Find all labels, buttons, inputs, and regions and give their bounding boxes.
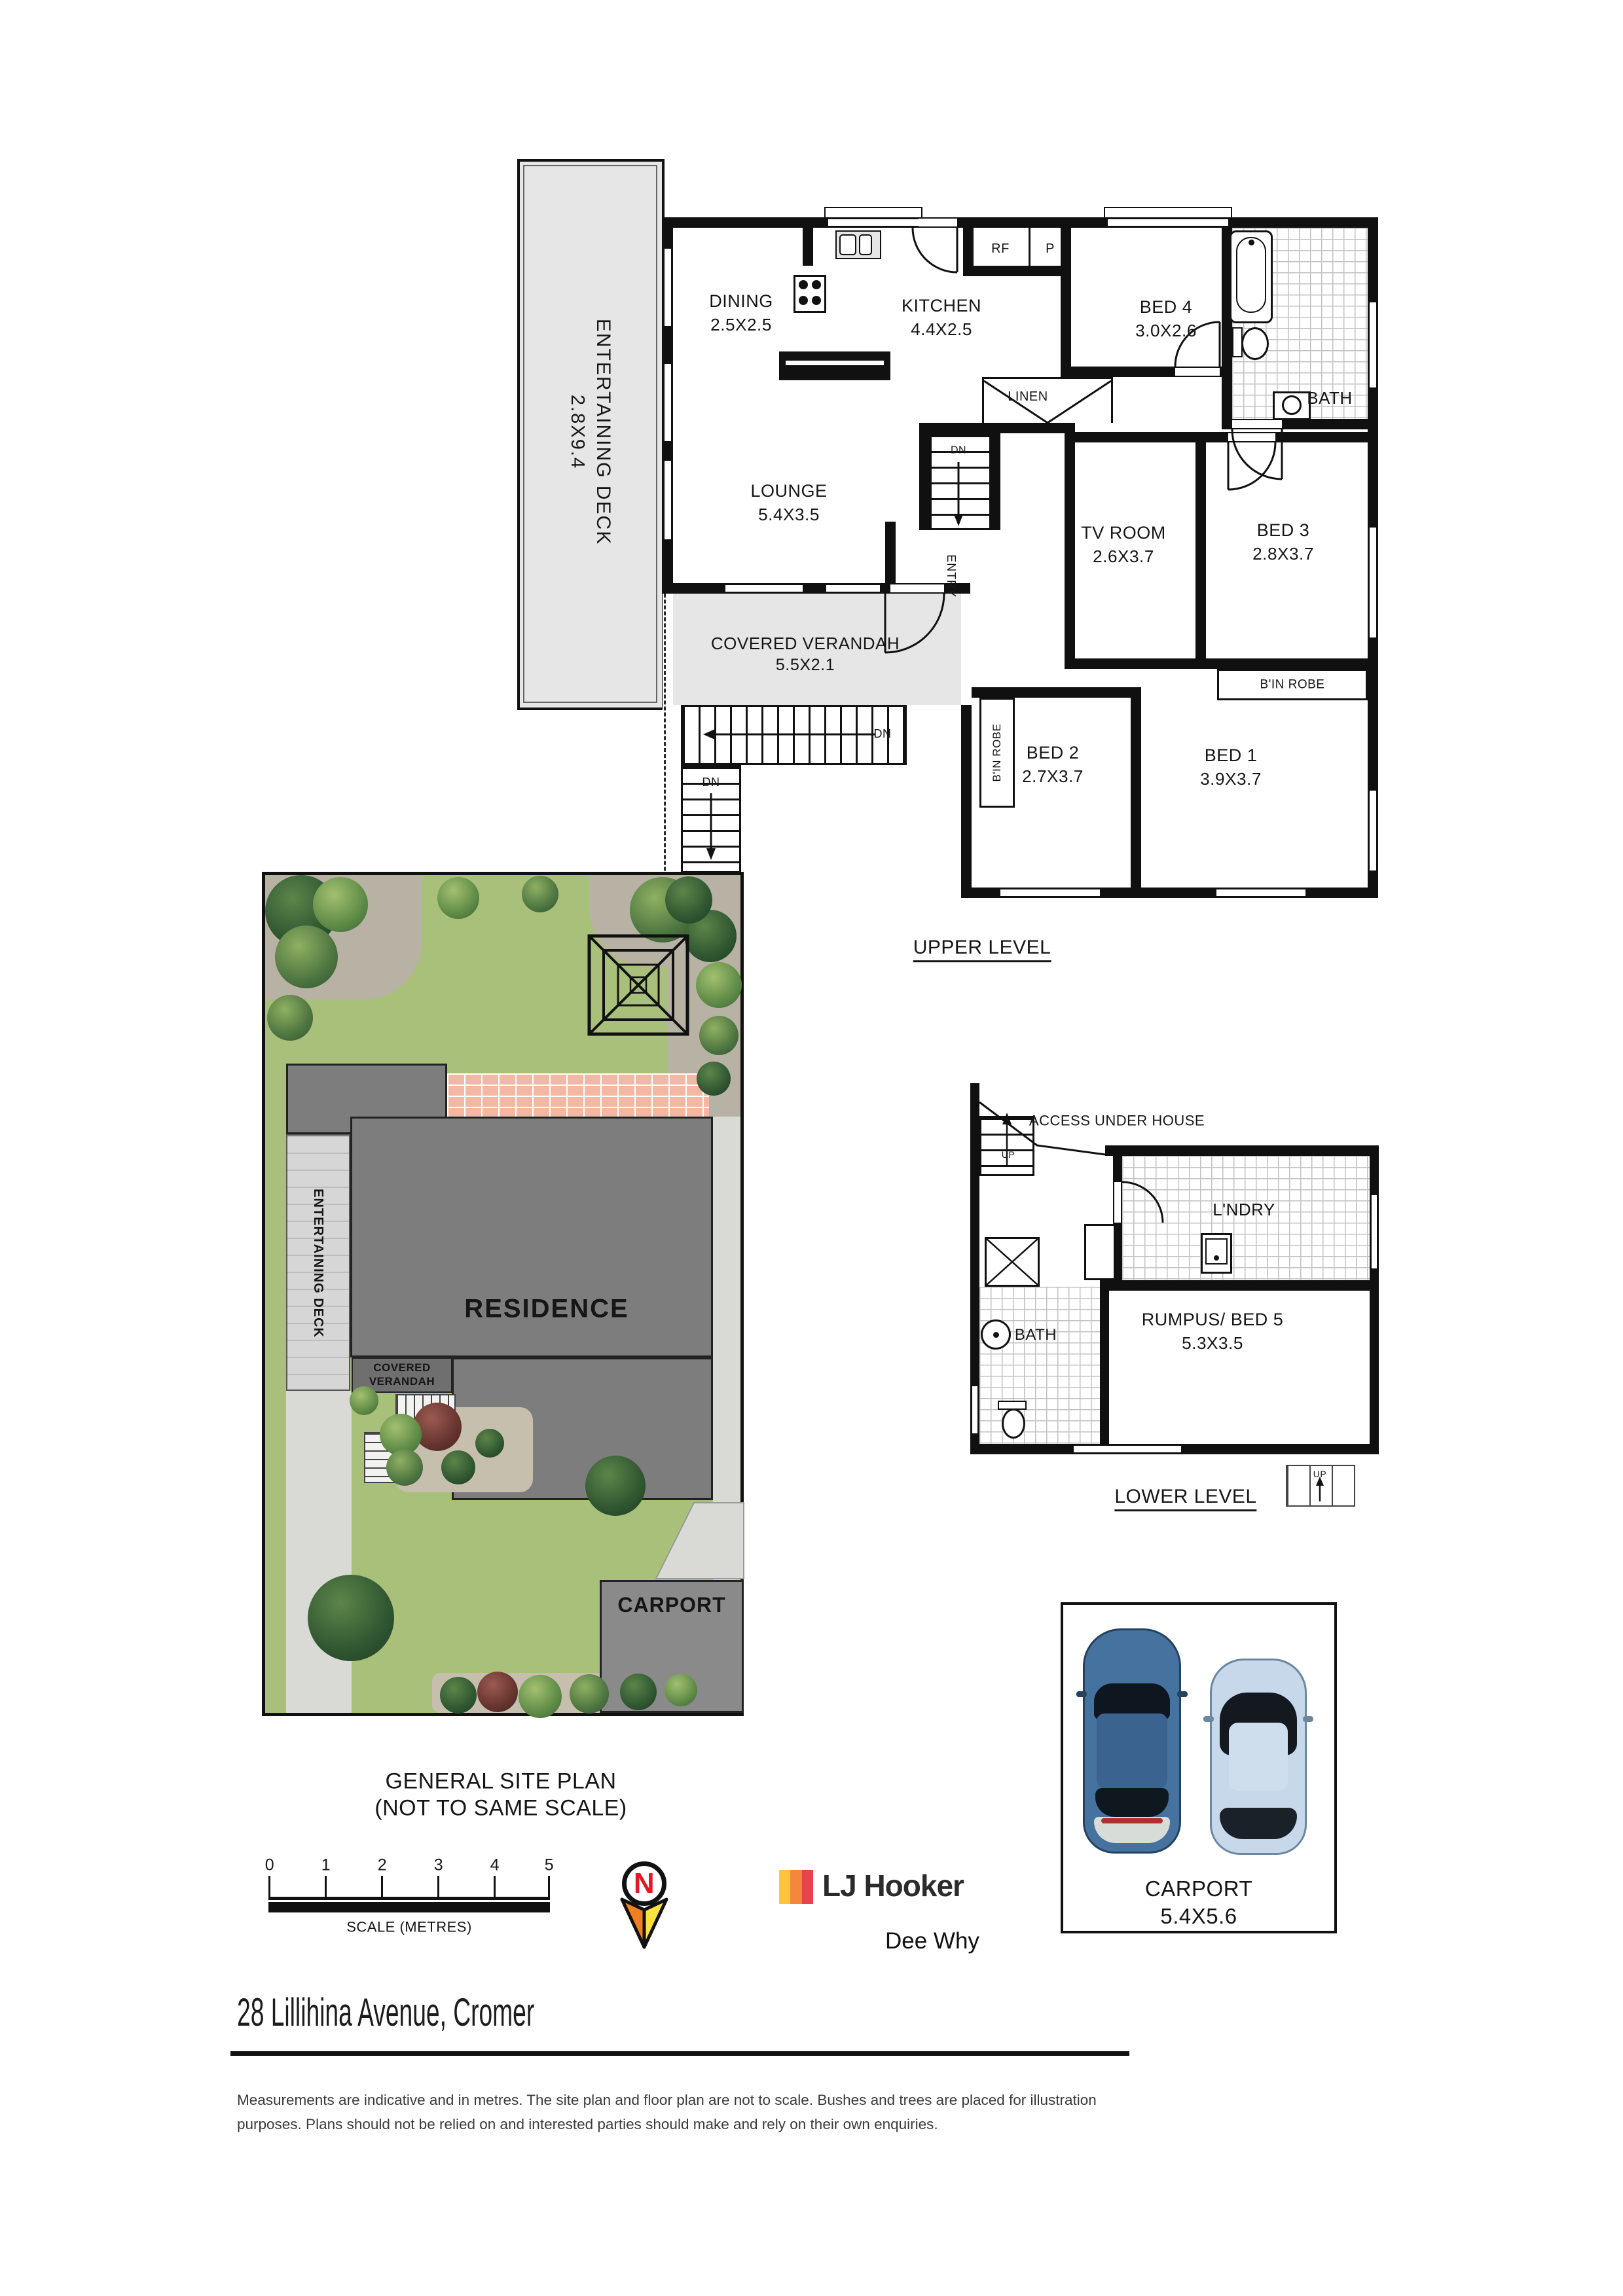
bush	[477, 1672, 518, 1712]
window	[1000, 888, 1100, 898]
basin	[1282, 395, 1302, 415]
cupboard-divider	[1029, 228, 1030, 266]
tree	[585, 1456, 646, 1516]
door-gap	[1228, 433, 1275, 441]
label-up: UP	[1313, 1468, 1326, 1480]
label-linen: LINEN	[1008, 388, 1048, 405]
toilet-bowl	[1241, 327, 1269, 360]
wall	[1195, 442, 1206, 665]
tree	[699, 1016, 739, 1055]
island-bench-line	[786, 361, 884, 365]
label-p: P	[1046, 240, 1055, 257]
room-label-bed2: BED 22.7X3.7	[1022, 742, 1084, 787]
room-label-lower-bath: BATH	[1015, 1325, 1057, 1346]
bush	[620, 1674, 657, 1710]
label-rf: RF	[991, 240, 1010, 257]
car-rear	[1220, 1808, 1297, 1839]
lower-level-title: LOWER LEVEL	[1114, 1484, 1256, 1510]
site-title: GENERAL SITE PLAN	[385, 1767, 616, 1797]
wall	[1105, 1145, 1371, 1156]
wall	[961, 705, 972, 898]
tap-icon	[1249, 240, 1254, 245]
window	[1368, 791, 1378, 870]
lower-bath-tiles	[979, 1287, 1100, 1444]
burner	[812, 296, 821, 305]
wall	[1065, 432, 1075, 669]
burner	[799, 280, 808, 289]
logo-band-yellow	[779, 1870, 790, 1904]
floorplan-page: ENTERTAINING DECK2.8X9.4 DINING2.5X2.5 K…	[0, 0, 1623, 2296]
logo-band-orange	[790, 1870, 802, 1904]
site-verandah-label: COVERED VERANDAH	[353, 1361, 451, 1389]
wall	[885, 522, 896, 583]
island-bench	[779, 351, 890, 380]
window	[828, 217, 919, 228]
room-label-verandah: COVERED VERANDAH5.5X2.1	[711, 632, 900, 677]
lower-stairs	[979, 1116, 1034, 1176]
car-mirror	[1203, 1716, 1214, 1722]
room-label-tv: TV ROOM2.6X3.7	[1081, 522, 1166, 567]
window-sill	[1104, 207, 1232, 219]
window	[663, 364, 673, 441]
car-mirror	[1177, 1691, 1188, 1697]
paved-path	[447, 1073, 709, 1117]
car-blue	[1083, 1628, 1181, 1854]
car-roof	[1229, 1723, 1288, 1791]
wall	[1131, 687, 1141, 888]
scale-tick-label: 5	[545, 1855, 554, 1876]
tree	[275, 925, 338, 988]
door-gap	[1175, 368, 1220, 376]
brand-office: Dee Why	[885, 1928, 979, 1954]
external-stairs	[681, 705, 907, 765]
scale-tick-label: 4	[490, 1855, 500, 1876]
sink-bowl	[859, 234, 872, 255]
window	[663, 249, 673, 326]
site-deck-label: ENTERTAINING DECK	[310, 1189, 327, 1338]
site-title-2: (NOT TO SAME SCALE)	[374, 1794, 627, 1823]
label-up: UP	[1002, 1149, 1015, 1160]
bush	[441, 1450, 475, 1484]
car-roof	[1097, 1713, 1167, 1788]
label-access: ACCESS UNDER HOUSE	[1029, 1111, 1205, 1130]
tree	[437, 877, 479, 919]
bathtub-inner	[1236, 237, 1266, 313]
door-gap	[1232, 420, 1282, 428]
scale-bar	[268, 1897, 550, 1912]
shower-dot	[993, 1332, 999, 1338]
scale-tick	[268, 1876, 270, 1897]
site-residence-label: RESIDENCE	[464, 1292, 629, 1327]
window	[1216, 888, 1305, 898]
site-carport-label: CARPORT	[617, 1591, 725, 1619]
room-label-bed1: BED 13.9X3.7	[1200, 744, 1262, 790]
bush	[350, 1386, 378, 1415]
burner	[799, 296, 808, 305]
door-gap	[1114, 1182, 1121, 1223]
tree	[697, 1062, 731, 1096]
window	[1368, 302, 1378, 387]
room-label-kitchen: KITCHEN4.4X2.5	[902, 295, 981, 340]
bush	[413, 1403, 462, 1451]
label-robe: B'IN ROBE	[1260, 676, 1325, 692]
tree-large	[308, 1575, 394, 1661]
footer-divider	[230, 2051, 1129, 2056]
label-robe: B'IN ROBE	[990, 724, 1004, 782]
bush	[386, 1449, 423, 1486]
carport-detail-size: 5.4X5.6	[1160, 1902, 1237, 1931]
scale-tick-label: 3	[434, 1855, 443, 1876]
wall	[1061, 226, 1071, 377]
room-label-laundry: L'NDRY	[1213, 1198, 1275, 1221]
upper-level-title: UPPER LEVEL	[913, 935, 1051, 961]
bush	[570, 1674, 609, 1713]
room-label-bath: BATH	[1307, 387, 1352, 409]
logo-band-red	[802, 1870, 813, 1904]
window	[970, 1386, 979, 1433]
bush	[665, 1674, 697, 1706]
carport-detail-label: CARPORT	[1145, 1874, 1252, 1903]
deck-name: ENTERTAINING DECK	[593, 319, 614, 545]
wall	[1105, 1280, 1371, 1291]
sink-bowl	[839, 234, 856, 255]
deck-edge-dashed	[664, 594, 666, 906]
disclaimer-line1: Measurements are indicative and in metre…	[237, 2092, 1097, 2109]
car-mirror	[1076, 1691, 1087, 1697]
scale-tick	[494, 1876, 496, 1897]
deck-label: ENTERTAINING DECK2.8X9.4	[565, 319, 616, 545]
wall	[972, 266, 1070, 276]
laundry-tub-inner	[1205, 1238, 1228, 1265]
property-address: 28 Lillihina Avenue, Cromer	[237, 1990, 534, 2035]
toilet-bowl	[1002, 1408, 1025, 1439]
wall	[1075, 432, 1378, 442]
bush	[475, 1429, 504, 1458]
scale-tick	[325, 1876, 327, 1897]
room-label-bed3: BED 32.8X3.7	[1252, 519, 1314, 565]
wall	[1206, 658, 1378, 669]
tree	[313, 877, 368, 932]
bush	[440, 1677, 477, 1713]
understair-storage	[985, 1237, 1040, 1287]
label-dn: DN	[951, 443, 966, 457]
wall	[990, 423, 1000, 530]
car-rear-glass	[1095, 1788, 1169, 1817]
label-dn: DN	[874, 726, 892, 742]
window	[1074, 1444, 1181, 1454]
tree	[696, 962, 742, 1008]
wall	[663, 217, 1378, 228]
north-letter: N	[634, 1865, 655, 1903]
path-below-deck	[286, 1391, 352, 1713]
scale-tick	[437, 1876, 439, 1897]
burner	[812, 280, 821, 289]
scale-tick-label: 0	[265, 1855, 274, 1876]
wall	[1370, 1145, 1379, 1454]
window	[1108, 217, 1228, 228]
scale-tick-label: 1	[321, 1855, 331, 1876]
tree	[665, 876, 712, 924]
wall	[1065, 658, 1206, 669]
room-label-bed4: BED 43.0X2.6	[1135, 296, 1197, 342]
brand-name: LJ Hooker	[822, 1868, 964, 1903]
window-sill	[824, 207, 922, 219]
scale-tick-label: 2	[378, 1855, 387, 1876]
wall	[1100, 1280, 1109, 1454]
scale-bar-line	[268, 1900, 550, 1902]
label-dn: DN	[702, 775, 720, 791]
tap-icon	[1214, 1255, 1219, 1261]
room-label-rumpus: RUMPUS/ BED 55.3X3.5	[1142, 1308, 1284, 1354]
door-gap	[913, 219, 957, 226]
scale-tick	[548, 1876, 550, 1897]
side-path	[713, 1117, 740, 1581]
car-mirror	[1303, 1716, 1313, 1722]
tree	[267, 995, 313, 1041]
car-lightblue	[1210, 1659, 1307, 1855]
window	[1368, 528, 1378, 637]
window	[1370, 1195, 1379, 1268]
car-brakelight	[1101, 1818, 1163, 1823]
door-gap	[890, 584, 944, 592]
scale-tick	[381, 1876, 383, 1897]
label-entry: ENTRY	[943, 554, 958, 598]
stove-cooktop	[793, 275, 826, 313]
window	[663, 461, 673, 539]
disclaimer-line2: purposes. Plans should not be relied on …	[237, 2116, 938, 2133]
room-label-dining: DINING2.5X2.5	[709, 290, 773, 336]
wall	[919, 423, 930, 530]
window	[826, 583, 880, 594]
north-arrow-pointer	[622, 1899, 666, 1947]
window	[725, 583, 803, 594]
cupboard	[1084, 1224, 1116, 1280]
ljhooker-logo-mark	[779, 1870, 813, 1904]
room-label-lounge: LOUNGE5.4X3.5	[750, 480, 827, 526]
bush	[519, 1675, 562, 1718]
scale-caption: SCALE (METRES)	[346, 1917, 472, 1936]
wall	[803, 226, 813, 266]
tree	[522, 876, 558, 912]
wall	[972, 687, 1141, 698]
